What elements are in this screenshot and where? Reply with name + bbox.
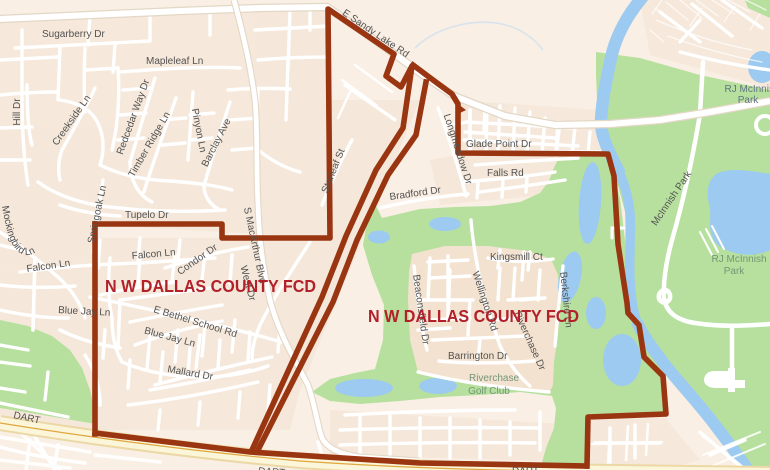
svg-text:Riverchase: Riverchase <box>469 373 519 384</box>
svg-text:N W DALLAS COUNTY FCD: N W DALLAS COUNTY FCD <box>368 306 579 326</box>
svg-text:Sugarberry Dr: Sugarberry Dr <box>42 29 105 40</box>
svg-text:Park: Park <box>738 95 760 106</box>
svg-text:Glade Point Dr: Glade Point Dr <box>466 139 532 150</box>
svg-text:N W DALLAS COUNTY FCD: N W DALLAS COUNTY FCD <box>105 276 316 296</box>
svg-text:Hill Dr: Hill Dr <box>12 98 23 126</box>
svg-text:Park: Park <box>724 266 746 277</box>
svg-text:DART: DART <box>512 466 539 470</box>
svg-text:RJ McInnish: RJ McInnish <box>724 84 770 95</box>
svg-text:RJ McInnish: RJ McInnish <box>711 254 766 265</box>
svg-text:Tupelo Dr: Tupelo Dr <box>125 210 169 221</box>
svg-text:Mapleleaf Ln: Mapleleaf Ln <box>146 56 203 67</box>
svg-text:Golf Club: Golf Club <box>468 386 510 397</box>
svg-text:Kingsmill Ct: Kingsmill Ct <box>490 252 543 263</box>
svg-text:Falls Rd: Falls Rd <box>487 168 524 179</box>
svg-text:Barrington Dr: Barrington Dr <box>448 351 508 362</box>
